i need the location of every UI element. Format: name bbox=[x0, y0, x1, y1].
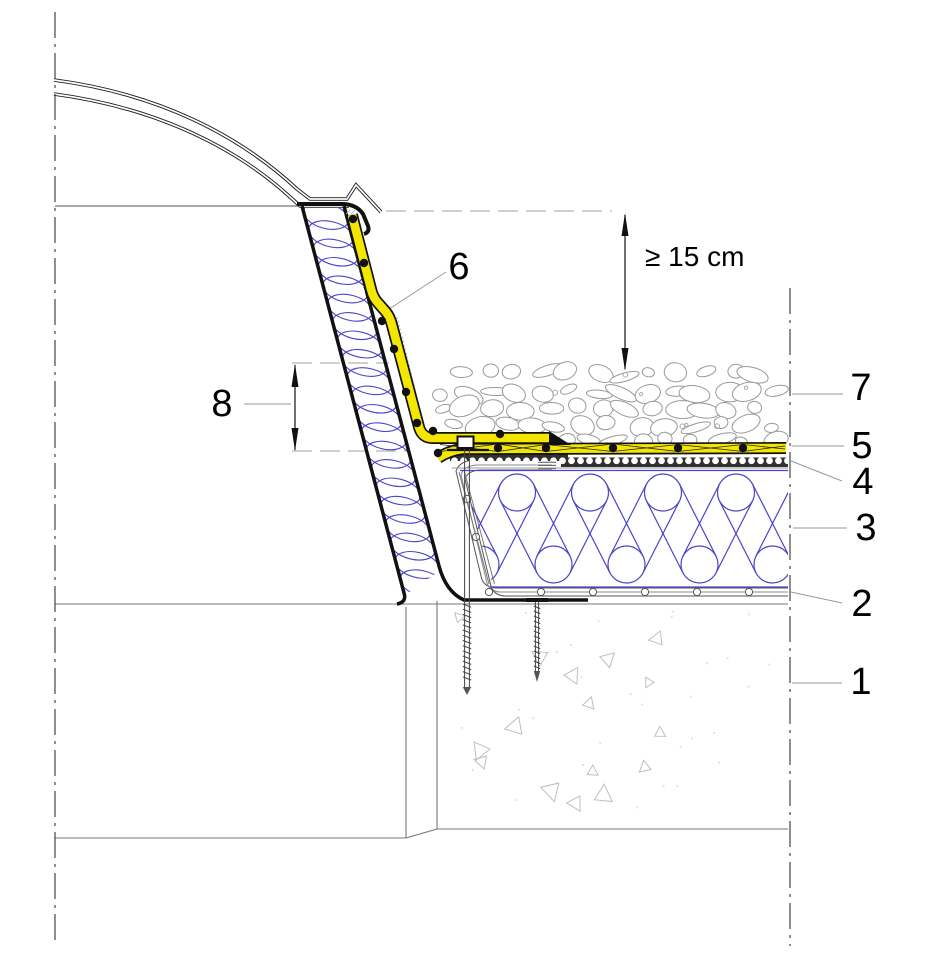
parapet-insulation-hatch bbox=[301, 198, 448, 601]
protection-layer-band bbox=[561, 458, 788, 468]
callout-5: 5 bbox=[851, 427, 872, 465]
section-lines bbox=[55, 12, 790, 946]
callout-7: 7 bbox=[850, 369, 871, 407]
callout-6: 6 bbox=[448, 248, 469, 286]
callout-1: 1 bbox=[850, 663, 871, 701]
screw-thread bbox=[534, 606, 540, 669]
roof-layers bbox=[389, 452, 864, 597]
parapet-inner-face bbox=[302, 206, 405, 604]
dimension-min-height-arrow bbox=[622, 213, 629, 371]
callout-3: 3 bbox=[855, 509, 876, 547]
section-drawing-canvas bbox=[0, 0, 927, 954]
fixing-screw-head bbox=[458, 437, 474, 449]
screw-thread bbox=[463, 604, 471, 680]
dome-rooflight bbox=[54, 80, 381, 212]
dimension-upstand-arrow bbox=[292, 364, 299, 451]
dimension-min-height-label: ≥ 15 cm bbox=[645, 243, 744, 271]
wall-and-deck-outline bbox=[55, 601, 788, 838]
vapour-barrier bbox=[456, 459, 788, 596]
detail-drawing: 6 8 7 5 4 3 2 1 ≥ 15 cm bbox=[0, 0, 927, 954]
callout-2: 2 bbox=[851, 585, 872, 623]
deck-screw-head bbox=[526, 598, 548, 602]
callout-4: 4 bbox=[852, 463, 873, 501]
callout-8: 8 bbox=[211, 385, 232, 423]
concrete-deck-hatch bbox=[455, 611, 770, 812]
